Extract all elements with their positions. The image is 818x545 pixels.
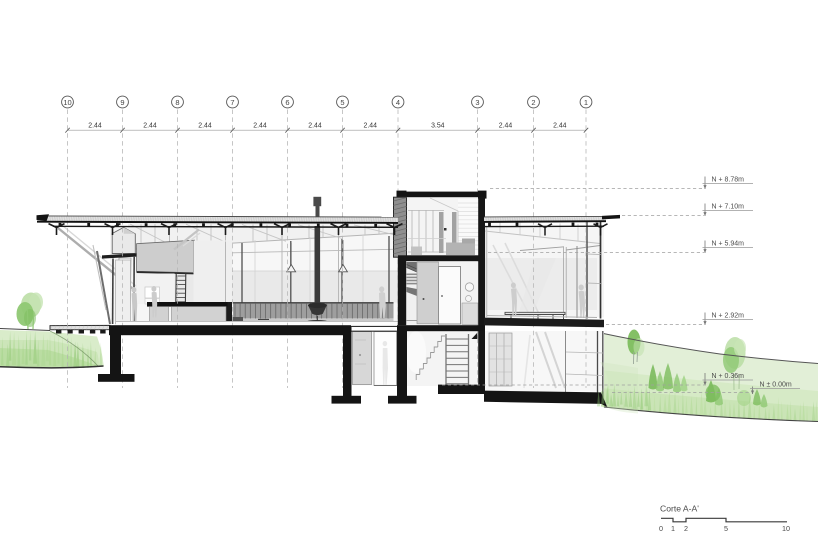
svg-text:2: 2 [684, 524, 688, 533]
svg-text:N + 5.94m: N + 5.94m [712, 241, 745, 248]
svg-text:1: 1 [671, 524, 675, 533]
svg-text:N + 7.10m: N + 7.10m [712, 204, 745, 211]
svg-text:2.44: 2.44 [143, 122, 157, 129]
svg-text:1: 1 [584, 98, 588, 107]
svg-text:10: 10 [782, 524, 790, 533]
svg-text:2.44: 2.44 [88, 122, 102, 129]
svg-text:2: 2 [531, 98, 535, 107]
svg-text:Corte A-A': Corte A-A' [660, 504, 699, 514]
svg-text:2.44: 2.44 [553, 122, 567, 129]
svg-text:N ± 0.00m: N ± 0.00m [760, 382, 792, 389]
svg-text:4: 4 [396, 98, 400, 107]
svg-text:2.44: 2.44 [499, 122, 513, 129]
svg-text:2.44: 2.44 [253, 122, 267, 129]
svg-text:5: 5 [340, 98, 344, 107]
svg-text:6: 6 [285, 98, 289, 107]
svg-text:3.54: 3.54 [431, 122, 445, 129]
svg-text:8: 8 [175, 98, 179, 107]
svg-text:2.44: 2.44 [363, 122, 377, 129]
svg-text:7: 7 [230, 98, 234, 107]
svg-text:N + 0.36m: N + 0.36m [712, 373, 745, 380]
svg-text:N + 8.78m: N + 8.78m [712, 177, 745, 184]
svg-text:2.44: 2.44 [198, 122, 212, 129]
svg-text:9: 9 [120, 98, 124, 107]
svg-text:0: 0 [659, 524, 663, 533]
svg-text:5: 5 [724, 524, 728, 533]
svg-text:N + 2.92m: N + 2.92m [712, 313, 745, 320]
svg-text:2.44: 2.44 [308, 122, 322, 129]
svg-text:3: 3 [475, 98, 479, 107]
svg-text:10: 10 [63, 98, 71, 107]
